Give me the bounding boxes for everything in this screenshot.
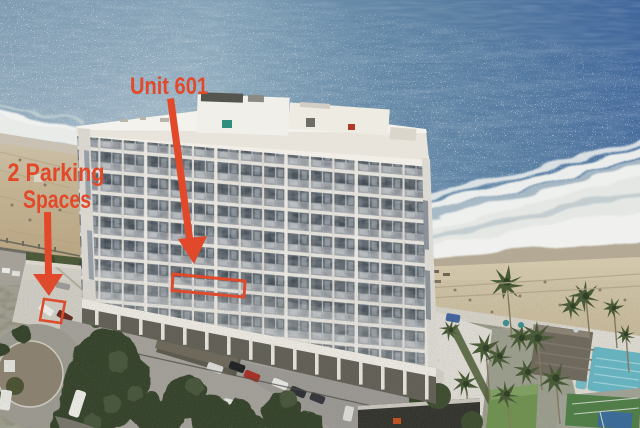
svg-text:2 Parking: 2 Parking	[8, 159, 105, 187]
svg-text:Spaces: Spaces	[23, 186, 91, 214]
svg-text:Unit 601: Unit 601	[130, 73, 208, 100]
